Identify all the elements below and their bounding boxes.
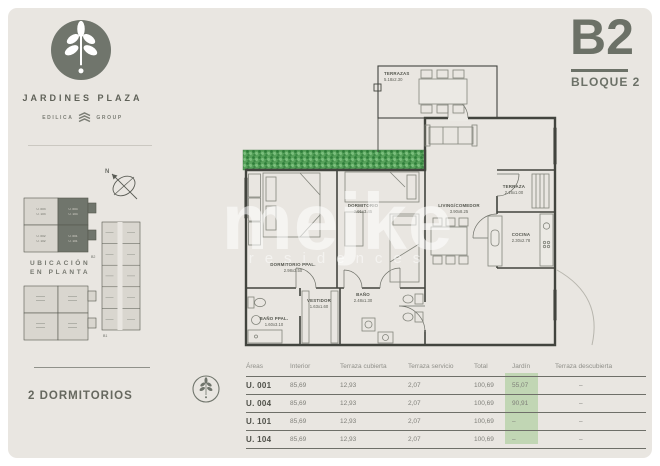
brand-name: JARDINES PLAZA xyxy=(15,93,150,103)
svg-text:U. 102: U. 102 xyxy=(36,239,45,243)
areas-table-header: Áreas Interior Terraza cubierta Terraza … xyxy=(246,360,646,376)
svg-text:2.91x3.45: 2.91x3.45 xyxy=(354,209,373,214)
table-row: U. 104 85,69 12,93 2,07 100,69 – – xyxy=(246,430,646,449)
miniplan-block1: B1 xyxy=(102,222,140,338)
living-furniture xyxy=(425,125,477,264)
chevrons-icon xyxy=(78,112,91,123)
bedroom2-furniture xyxy=(345,172,419,282)
svg-text:1.60x3.10: 1.60x3.10 xyxy=(265,322,284,327)
table-row: U. 101 85,69 12,93 2,07 100,69 – – xyxy=(246,412,646,430)
room-label-terrazas: TERRAZAS xyxy=(384,71,410,76)
hedge-plants xyxy=(243,150,426,170)
compass-icon: N xyxy=(105,169,139,200)
svg-text:3.90x8.25: 3.90x8.25 xyxy=(450,209,469,214)
divider xyxy=(34,367,150,368)
compass-north-label: N xyxy=(105,169,109,175)
location-label: UBICACIÓN EN PLANTA xyxy=(30,259,90,277)
unit-id: U. 004 xyxy=(246,399,290,408)
floorplan-sheet: N U. 003 U. 103 U. 004 U. 104 U. 002 U. … xyxy=(0,0,660,466)
col-header-areas: Áreas xyxy=(246,363,290,370)
table-row: U. 001 85,69 12,93 2,07 100,69 55,07 – xyxy=(246,376,646,394)
divider xyxy=(28,145,152,146)
unit-id: U. 104 xyxy=(246,435,290,444)
svg-text:2.16x1.00: 2.16x1.00 xyxy=(505,190,524,195)
leaf-icon xyxy=(199,377,213,398)
svg-text:5.18x2.30: 5.18x2.30 xyxy=(384,77,403,82)
room-label-dormitorio: DORMITORIO xyxy=(348,203,379,208)
col-header-interior: Interior xyxy=(290,363,340,370)
developer-row: EDILICA GROUP xyxy=(15,112,150,123)
room-label-dormitorio-ppal: DORMITORIO PPAL. xyxy=(270,262,315,267)
developer-name-right: GROUP xyxy=(96,115,122,121)
leaf-badge xyxy=(193,376,219,402)
svg-text:U. 003: U. 003 xyxy=(36,207,45,211)
svg-text:1.63x1.60: 1.63x1.60 xyxy=(310,304,329,309)
service-terrace-fixtures xyxy=(532,174,549,208)
col-header-terraza-cubierta: Terraza cubierta xyxy=(340,363,408,370)
col-header-jardin: Jardín xyxy=(512,363,555,370)
bedrooms-summary: 2 DORMITORIOS xyxy=(28,390,133,402)
unit-id: U. 001 xyxy=(246,381,290,390)
col-header-terraza-descubierta: Terraza descubierta xyxy=(555,363,646,370)
unit-block-label: BLOQUE 2 xyxy=(571,75,640,89)
svg-text:2.98x3.50: 2.98x3.50 xyxy=(284,268,303,273)
room-label-bano-ppal: BAÑO PPAL. xyxy=(260,316,289,321)
brand-logo xyxy=(51,20,111,80)
terrace-dining-set xyxy=(419,70,467,113)
block2-mark: B2 xyxy=(91,255,95,259)
developer-name-left: EDILICA xyxy=(42,115,73,121)
svg-text:U. 103: U. 103 xyxy=(36,212,45,216)
areas-table: Áreas Interior Terraza cubierta Terraza … xyxy=(246,360,646,449)
room-label-living: LIVING/COMEDOR xyxy=(438,203,480,208)
room-label-vestidor: VESTIDOR xyxy=(307,298,332,303)
bedroom1-furniture xyxy=(249,173,321,245)
room-label-cocina: COCINA xyxy=(512,232,531,237)
svg-text:U. 101: U. 101 xyxy=(68,239,77,243)
svg-text:U. 001: U. 001 xyxy=(68,234,77,238)
floorplan-drawing: TERRAZAS 5.18x2.30 DORMITORIO PPAL. 2.98… xyxy=(243,66,594,345)
col-header-total: Total xyxy=(474,363,512,370)
block1-mark: B1 xyxy=(103,334,107,338)
svg-text:U. 104: U. 104 xyxy=(68,212,77,216)
miniplan-block2 xyxy=(24,198,96,252)
unit-code: B2 xyxy=(570,12,634,62)
room-label-bano: BAÑO xyxy=(356,292,370,297)
svg-text:U. 004: U. 004 xyxy=(68,207,77,211)
unit-code-underline xyxy=(571,69,628,72)
svg-text:2.48x1.30: 2.48x1.30 xyxy=(354,298,373,303)
unit-id: U. 101 xyxy=(246,417,290,426)
table-row: U. 004 85,69 12,93 2,07 100,69 90,91 – xyxy=(246,394,646,412)
col-header-terraza-servicio: Terraza servicio xyxy=(408,363,474,370)
svg-text:U. 002: U. 002 xyxy=(36,234,45,238)
svg-text:2.30x2.78: 2.30x2.78 xyxy=(512,238,531,243)
miniplan-block3 xyxy=(24,286,96,340)
room-label-terraza: TERRAZA xyxy=(503,184,526,189)
